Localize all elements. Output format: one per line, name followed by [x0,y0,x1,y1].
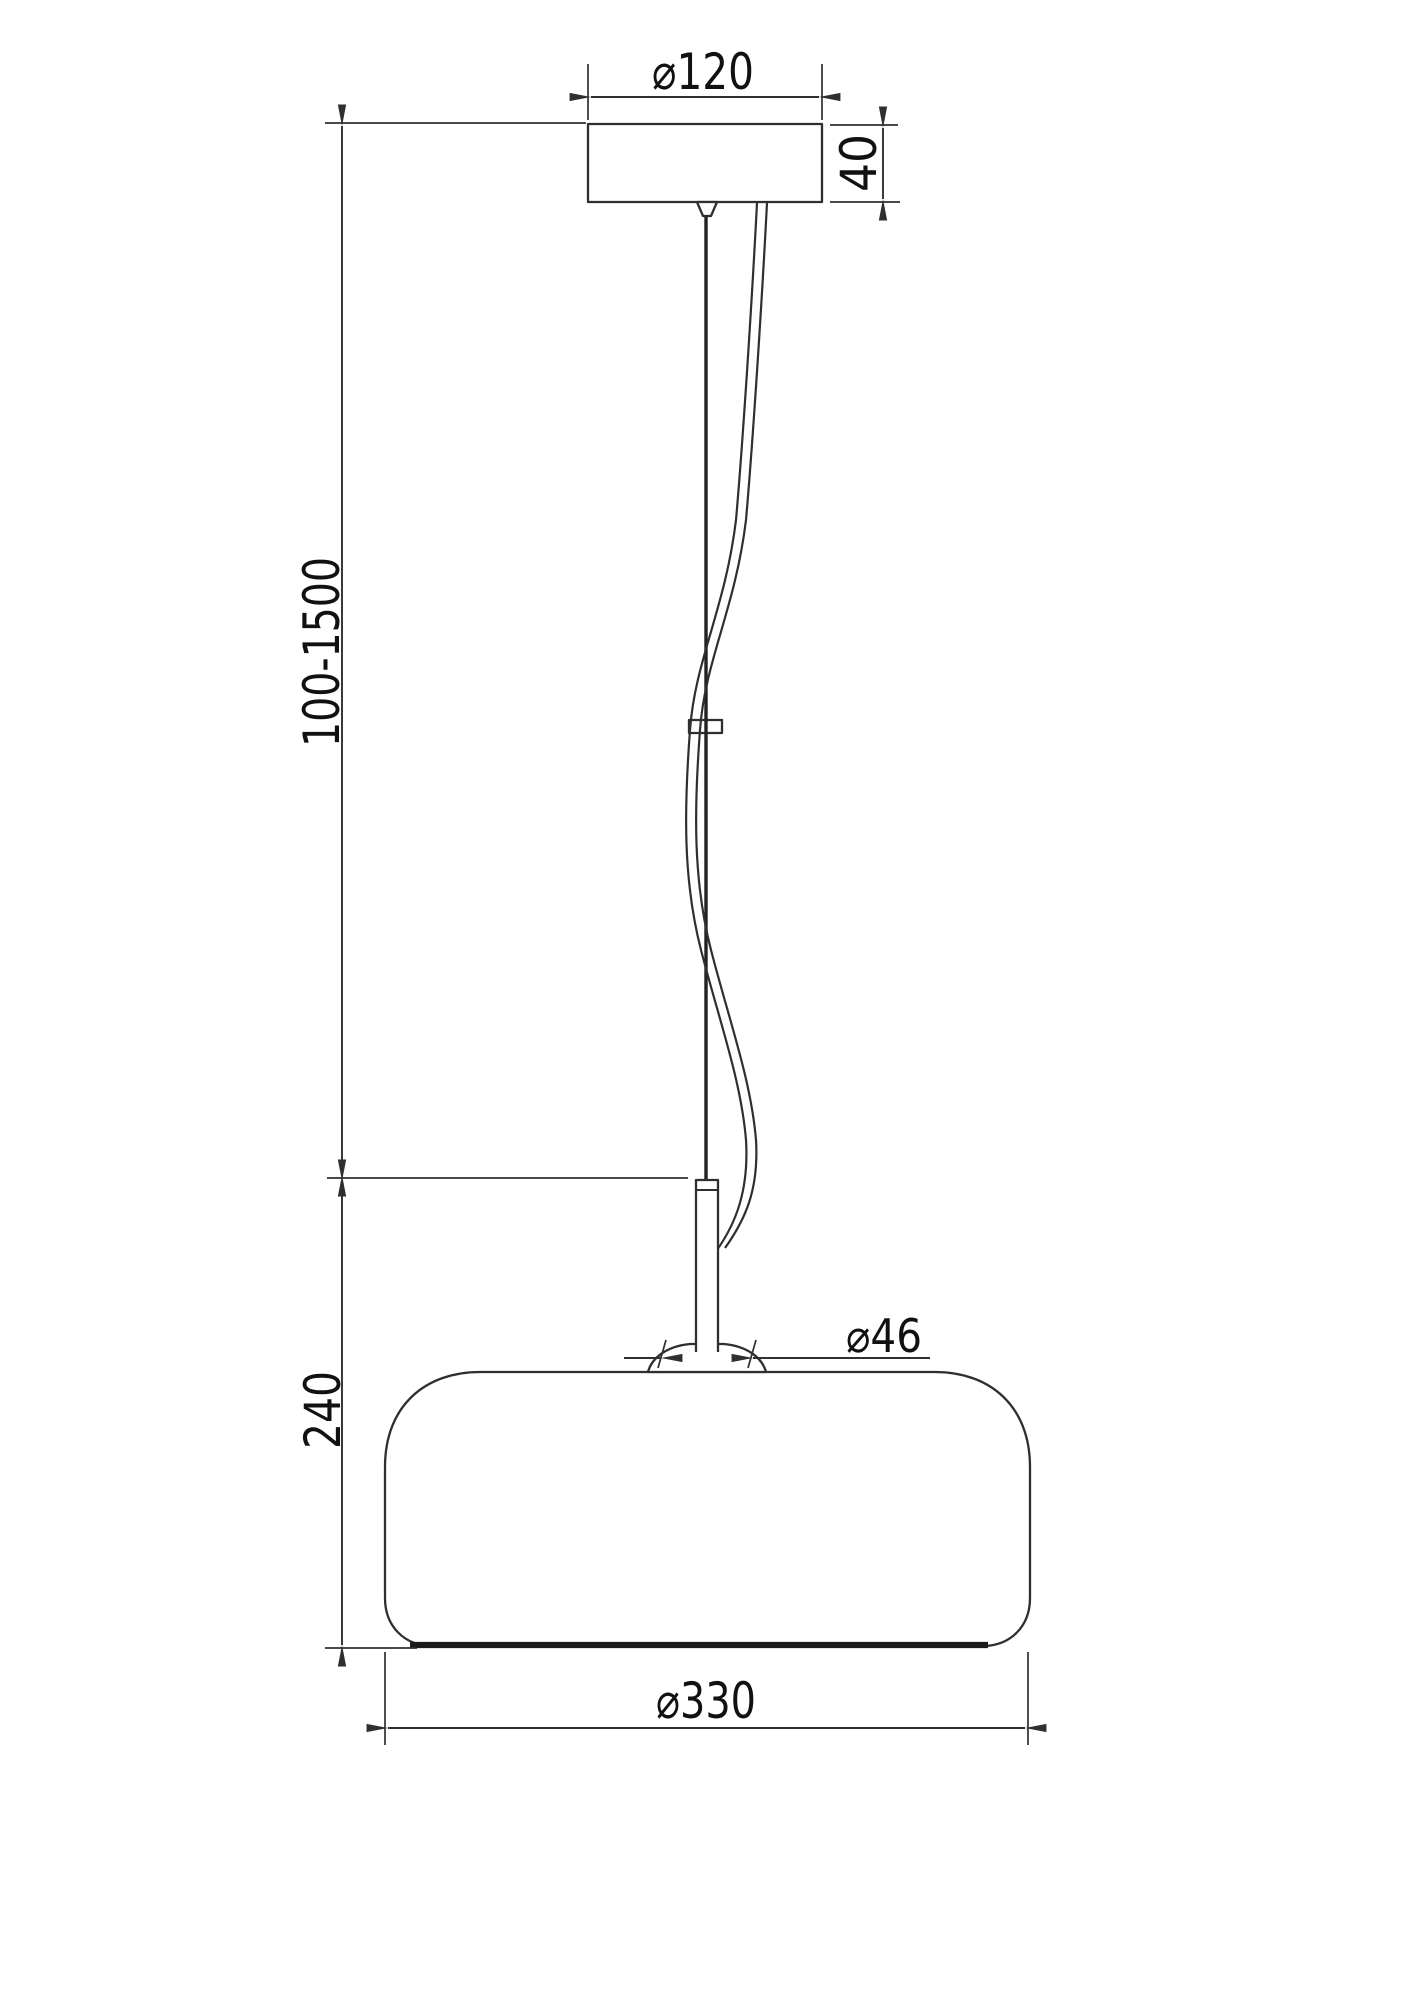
dim-canopy-height: 40 [830,125,900,202]
dim-canopy-diameter: ⌀120 [588,43,822,120]
dim-label-holder-diameter: ⌀46 [846,1309,922,1363]
stem-body [696,1180,718,1352]
ceiling-canopy [588,124,822,216]
technical-drawing: ⌀120 40 100-1500 240 ⌀46 [0,0,1413,2000]
shade-outline [385,1372,1030,1646]
canopy-body [588,124,822,202]
dim-label-shade-height: 240 [294,1371,352,1449]
dim-suspension-length: 100-1500 [293,123,688,1178]
lamp-shade [385,1372,1030,1646]
canopy-cable-gland [697,202,717,216]
pendant-lamp-dimension-drawing: ⌀120 40 100-1500 240 ⌀46 [0,0,1413,2000]
dim-label-canopy-height: 40 [830,134,888,192]
lamp-stem [696,1180,718,1352]
dim-shade-diameter: ⌀330 [385,1652,1028,1745]
dim-label-suspension-length: 100-1500 [293,557,351,747]
dim-label-canopy-diameter: ⌀120 [652,43,754,101]
dim-label-shade-diameter: ⌀330 [656,1672,756,1730]
